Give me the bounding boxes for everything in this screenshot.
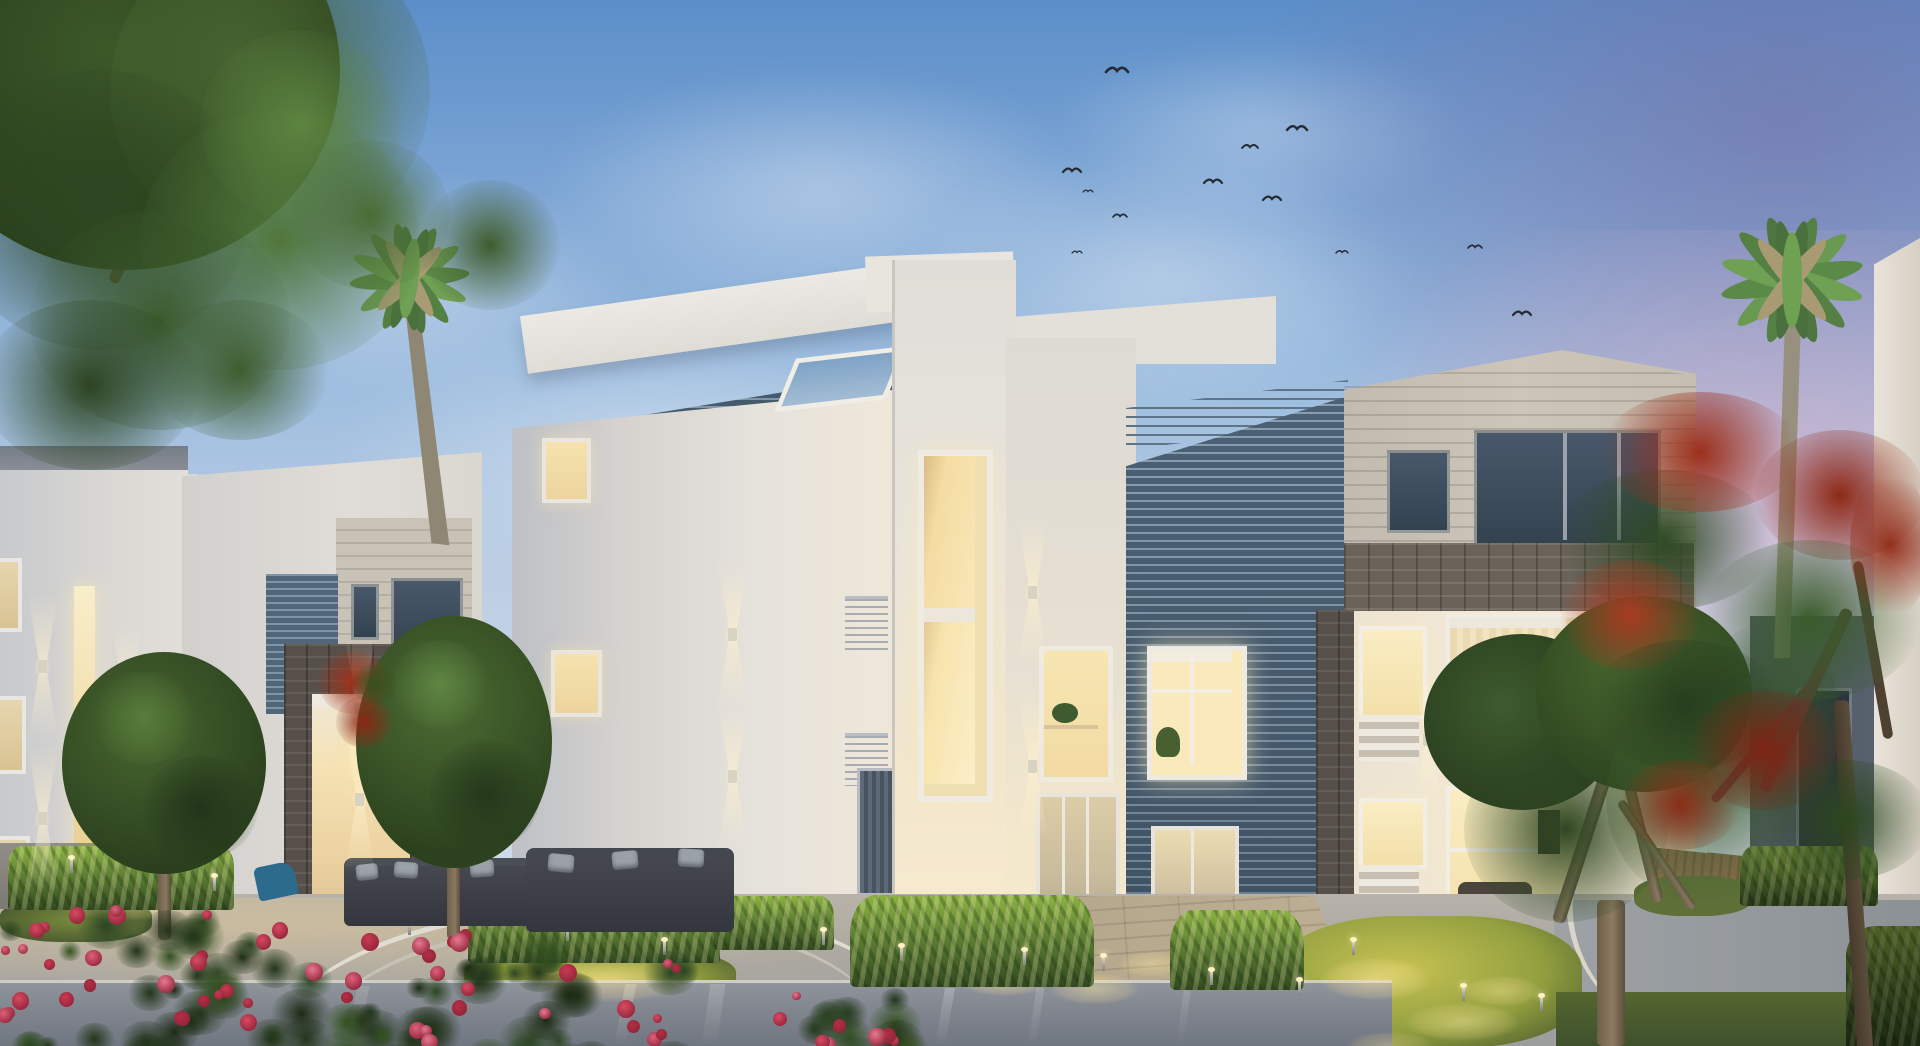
throw-pillow (355, 863, 379, 881)
tree-trunk (447, 858, 460, 940)
canopy-highlight (392, 640, 488, 728)
canopy-highlight (92, 672, 196, 764)
throw-pillow (547, 853, 574, 873)
red-blossom-cluster (1850, 470, 1920, 620)
window-reflection-streak (702, 984, 726, 1046)
tree-canopy (420, 180, 560, 310)
green-foliage (352, 664, 396, 704)
throw-pillow (393, 861, 418, 879)
dusk-villa-rendering (0, 0, 1920, 1046)
illuminated-hedge (850, 895, 1094, 987)
tree-trunk (1597, 900, 1625, 1046)
illuminated-hedge (1170, 910, 1304, 990)
canopy-shadow (430, 740, 540, 850)
tree-canopy (150, 300, 330, 440)
canopy-shadow (142, 756, 258, 860)
window-reflection-streak (1176, 990, 1191, 1044)
throw-pillow (678, 848, 705, 867)
red-blossom-cluster (1620, 760, 1740, 850)
fern-foliage (1760, 760, 1920, 880)
window-reflection-streak (347, 986, 370, 1042)
throw-pillow (611, 850, 638, 870)
window-reflection-streak (1027, 988, 1044, 1046)
window-reflection-streak (935, 988, 955, 1046)
window-reflection-streak (615, 984, 637, 1044)
red-blossom-cluster (336, 696, 392, 748)
